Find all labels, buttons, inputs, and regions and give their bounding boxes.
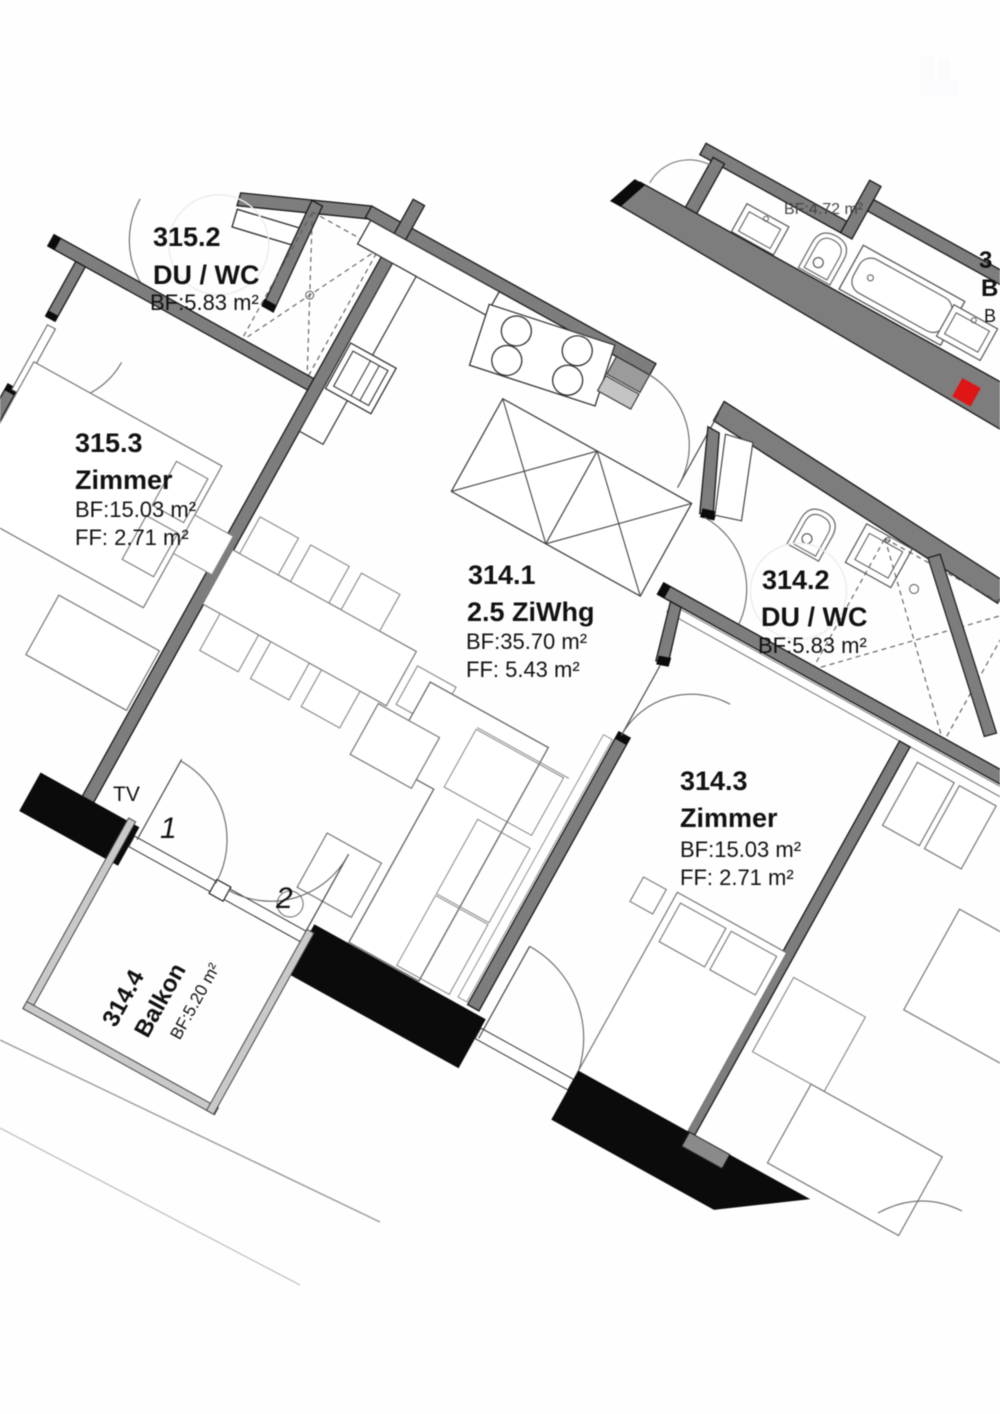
svg-text:BF:5.83 m²: BF:5.83 m² [758, 633, 867, 658]
svg-text:BF:35.70 m²: BF:35.70 m² [466, 629, 587, 654]
svg-text:314.1: 314.1 [468, 560, 536, 590]
svg-text:2: 2 [275, 882, 293, 915]
svg-text:FF: 2.71 m²: FF: 2.71 m² [680, 865, 794, 890]
svg-text:B: B [984, 306, 996, 326]
svg-text:Zimmer: Zimmer [75, 465, 173, 495]
svg-text:314.2: 314.2 [762, 565, 830, 595]
svg-text:315.3: 315.3 [75, 428, 143, 458]
svg-text:1: 1 [160, 812, 177, 845]
svg-text:DU / WC: DU / WC [153, 260, 259, 290]
svg-text:BF:4.72 m²: BF:4.72 m² [784, 201, 864, 218]
svg-text:315.2: 315.2 [153, 222, 221, 252]
svg-text:314.3: 314.3 [680, 766, 748, 796]
svg-text:BF:5.83 m²: BF:5.83 m² [150, 290, 259, 315]
svg-text:BF:15.03 m²: BF:15.03 m² [680, 837, 801, 862]
svg-text:FF: 2.71 m²: FF: 2.71 m² [75, 525, 189, 550]
svg-text:DU / WC: DU / WC [761, 602, 867, 632]
svg-text:BF:15.03 m²: BF:15.03 m² [75, 497, 196, 522]
svg-text:TV: TV [113, 783, 140, 806]
svg-text:FF: 5.43 m²: FF: 5.43 m² [466, 657, 580, 682]
svg-text:Zimmer: Zimmer [680, 803, 778, 833]
svg-text:2.5 ZiWhg: 2.5 ZiWhg [467, 597, 595, 627]
svg-text:B: B [981, 275, 998, 302]
svg-text:3: 3 [979, 247, 992, 274]
